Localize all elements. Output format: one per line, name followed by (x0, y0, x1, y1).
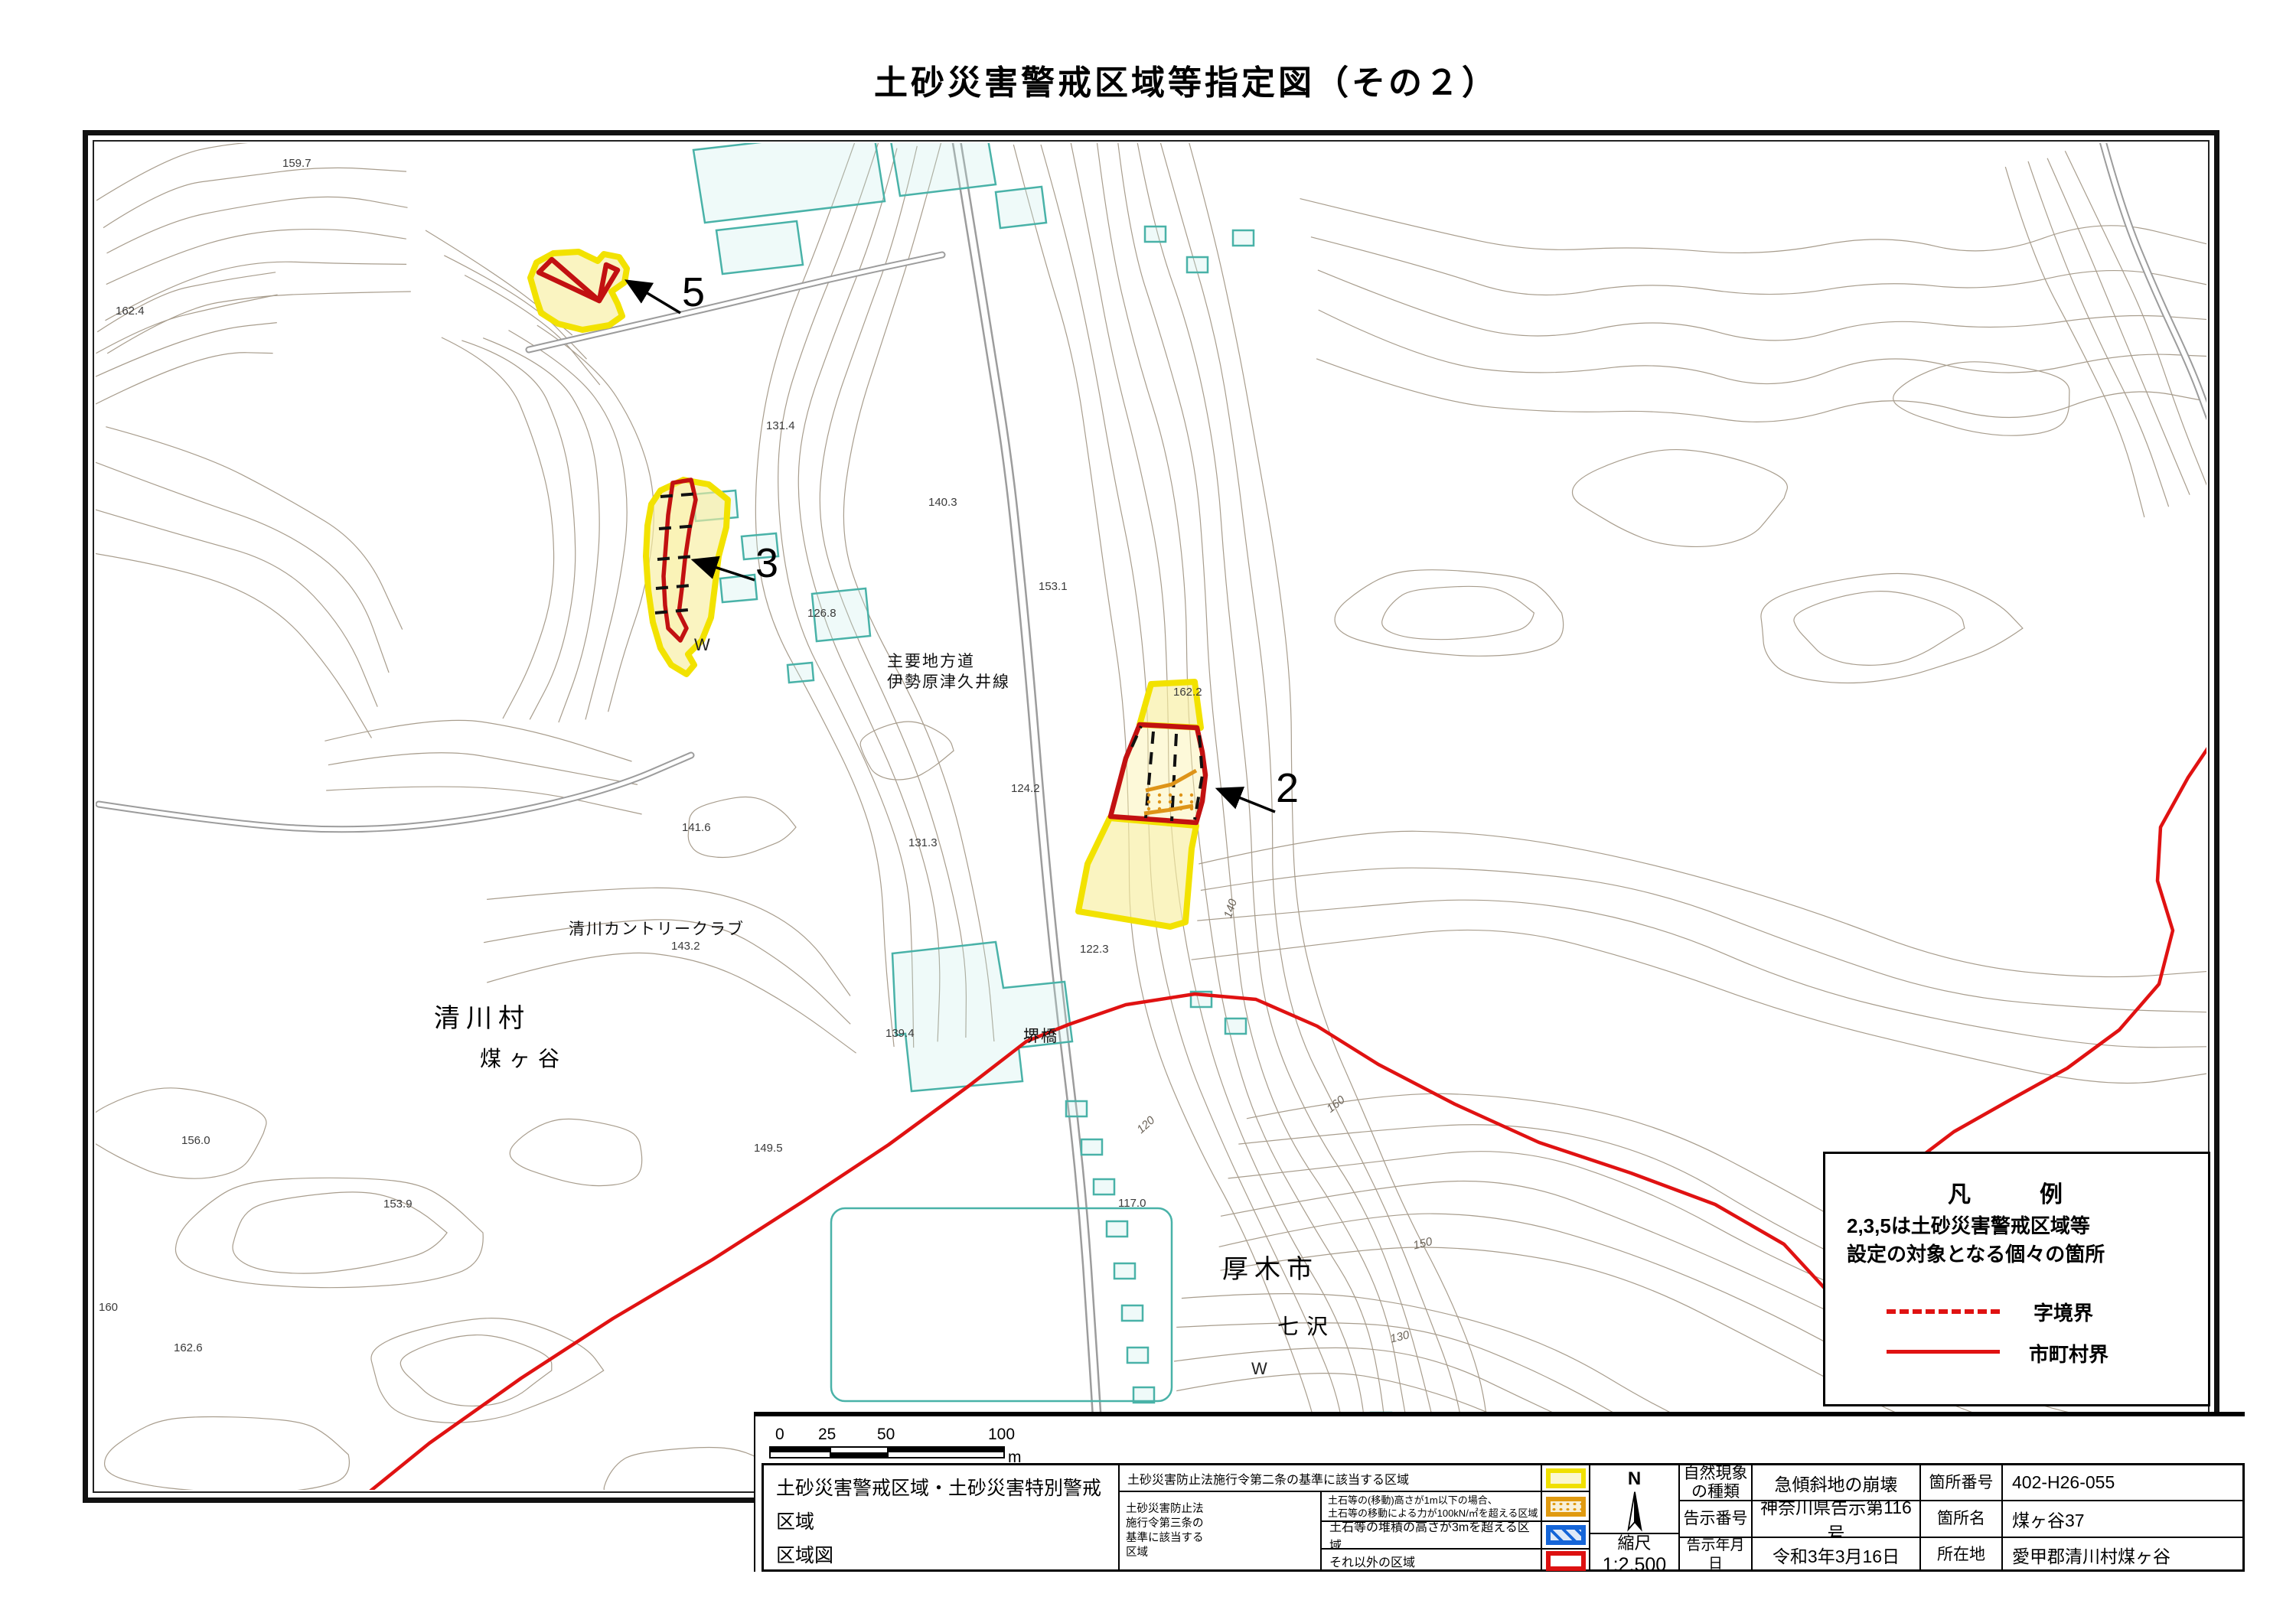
compass-north-label: N (1628, 1468, 1641, 1490)
contour-label: 130 (1389, 1329, 1411, 1346)
zone3-row1-swatch-cell (1542, 1492, 1590, 1522)
legend-box: 凡 例 2,3,5は土砂災害警戒区域等 設定の対象となる個々の箇所 字境界 市町… (1823, 1152, 2210, 1406)
elevation-label: 160 (99, 1302, 118, 1315)
scale-bar: 0 25 50 100 m (766, 1421, 1072, 1462)
orange-dots-swatch (1546, 1497, 1586, 1517)
yellow-zone-swatch (1546, 1468, 1586, 1488)
zone3-row3-cell: それ以外の区域 (1322, 1550, 1542, 1572)
elevation-label: 162.4 (116, 305, 145, 318)
elevation-label: 153.9 (383, 1198, 413, 1211)
zone2-swatch-cell (1542, 1465, 1590, 1492)
row3-label2-cell: 所在地 (1921, 1538, 2003, 1572)
info-table: 土砂災害警戒区域・土砂災害特別警戒区域 区域図 土砂災害防止法施行令第二条の基準… (762, 1463, 2245, 1572)
elevation-label: 162.6 (174, 1342, 203, 1355)
elevation-label: 162.2 (1173, 686, 1202, 699)
road-label-isehara-tsukui-line: 主要地方道 伊勢原津久井線 (887, 651, 1010, 693)
legend-note-line2: 設定の対象となる個々の箇所 (1847, 1240, 2105, 1269)
page-title: 土砂災害警戒区域等指定図（その２） (804, 55, 1569, 104)
well-mark: W (1251, 1360, 1267, 1378)
zone3-row2-cell: 土石等の堆積の高さが3mを超える区域 (1322, 1522, 1542, 1550)
scale-cell: 縮尺 1:2,500 (1590, 1534, 1680, 1572)
elevation-label: 140.3 (928, 497, 957, 510)
place-label-kiyokawa-country-club: 清川カントリークラブ (569, 921, 745, 938)
contour-label: 160 (1325, 1094, 1348, 1116)
place-label-kiyokawa-mura: 清川村 (434, 1005, 530, 1033)
elevation-label: 149.5 (754, 1142, 783, 1155)
contour-label: 120 (1135, 1114, 1158, 1136)
row2-value2-cell: 煤ヶ谷37 (2003, 1501, 2242, 1538)
row3-label-cell: 告示年月日 (1680, 1538, 1753, 1572)
legend-note: 2,3,5は土砂災害警戒区域等 設定の対象となる個々の箇所 (1847, 1212, 2105, 1269)
blue-hatch-swatch (1546, 1525, 1586, 1545)
place-label-susugaya: 煤ヶ谷 (480, 1048, 567, 1071)
map-sheet-title-line2: 区域図 (776, 1539, 1118, 1572)
solid-red-line-sample (1887, 1350, 2000, 1354)
legend-note-line1: 2,3,5は土砂災害警戒区域等 (1847, 1212, 2105, 1240)
row3-value-cell: 令和3年3月16日 (1753, 1538, 1921, 1572)
well-mark: W (694, 636, 710, 654)
elevation-label: 156.0 (181, 1135, 210, 1148)
elevation-label: 126.8 (807, 608, 837, 621)
row1-label-cell: 自然現象 の種類 (1680, 1465, 1753, 1501)
place-label-nanasawa: 七沢 (1277, 1315, 1336, 1339)
row1-label2-cell: 箇所番号 (1921, 1465, 2003, 1501)
elevation-label: 117.0 (1118, 1198, 1146, 1211)
scale-tick: 50 (877, 1426, 895, 1444)
compass-cell: N (1590, 1465, 1680, 1534)
elevation-label: 131.3 (908, 837, 938, 850)
elevation-label: 139.4 (885, 1028, 915, 1041)
zone3-row1-cell: 土石等の(移動)高さが1m以下の場合、 土石等の移動による力が100kN/㎡を超… (1322, 1492, 1542, 1522)
place-label-atsugi-shi: 厚木市 (1222, 1256, 1319, 1284)
hazard-area-3-label: 3 (755, 541, 778, 586)
north-arrow-icon (1619, 1490, 1650, 1533)
elevation-label: 141.6 (682, 822, 711, 835)
elevation-label: 122.3 (1080, 943, 1109, 957)
legend-item-aza-boundary: 字境界 (2033, 1298, 2093, 1326)
elevation-label: 131.4 (766, 420, 795, 433)
zone3-row3-swatch-cell (1542, 1550, 1590, 1572)
contour-label: 140 (1222, 898, 1240, 920)
elevation-label: 143.2 (671, 940, 700, 953)
scale-bar-graphic (769, 1446, 1005, 1458)
row2-label-cell: 告示番号 (1680, 1501, 1753, 1538)
bottom-info-block: 0 25 50 100 m 土砂災害警戒区域・土砂災害特別警戒区域 区域図 土砂… (754, 1412, 2245, 1572)
row1-value2-cell: 402-H26-055 (2003, 1465, 2242, 1501)
scale-word: 縮尺 (1617, 1534, 1651, 1554)
contour-label: 150 (1412, 1236, 1433, 1253)
zone2-label-cell: 土砂災害防止法施行令第二条の基準に該当する区域 (1120, 1465, 1542, 1492)
row3-value2-cell: 愛甲郡清川村煤ヶ谷 (2003, 1538, 2242, 1572)
scale-tick: 25 (818, 1426, 836, 1444)
elevation-label: 159.7 (282, 158, 311, 171)
elevation-label: 124.2 (1011, 783, 1040, 796)
zone3-row2-swatch-cell (1542, 1522, 1590, 1550)
page: 土砂災害警戒区域等指定図（その２） (0, 0, 2296, 1623)
scale-tick: 0 (775, 1426, 784, 1444)
place-label-sakaibashi: 堺橋 (1023, 1028, 1058, 1045)
map-sheet-title-line1: 土砂災害警戒区域・土砂災害特別警戒区域 (776, 1471, 1118, 1539)
row2-label2-cell: 箇所名 (1921, 1501, 2003, 1538)
row1-value-cell: 急傾斜地の崩壊 (1753, 1465, 1921, 1501)
legend-item-municipal-boundary: 市町村界 (2029, 1339, 2108, 1367)
hazard-area-5-label: 5 (682, 270, 705, 315)
scale-tick: 100 (988, 1426, 1015, 1444)
row2-value-cell: 神奈川県告示第116号 (1753, 1501, 1921, 1538)
scale-value: 1:2,500 (1603, 1554, 1666, 1572)
map-sheet-title-cell: 土砂災害警戒区域・土砂災害特別警戒区域 区域図 (764, 1465, 1120, 1572)
zone3-label-cell: 土砂災害防止法 施行令第三条の 基準に該当する 区域 (1120, 1492, 1322, 1572)
hazard-area-2-label: 2 (1276, 766, 1299, 811)
red-outline-swatch (1546, 1551, 1586, 1571)
elevation-label: 153.1 (1039, 581, 1068, 594)
legend-title: 凡 例 (1825, 1175, 2208, 1209)
dashed-red-line-sample (1887, 1309, 2000, 1314)
